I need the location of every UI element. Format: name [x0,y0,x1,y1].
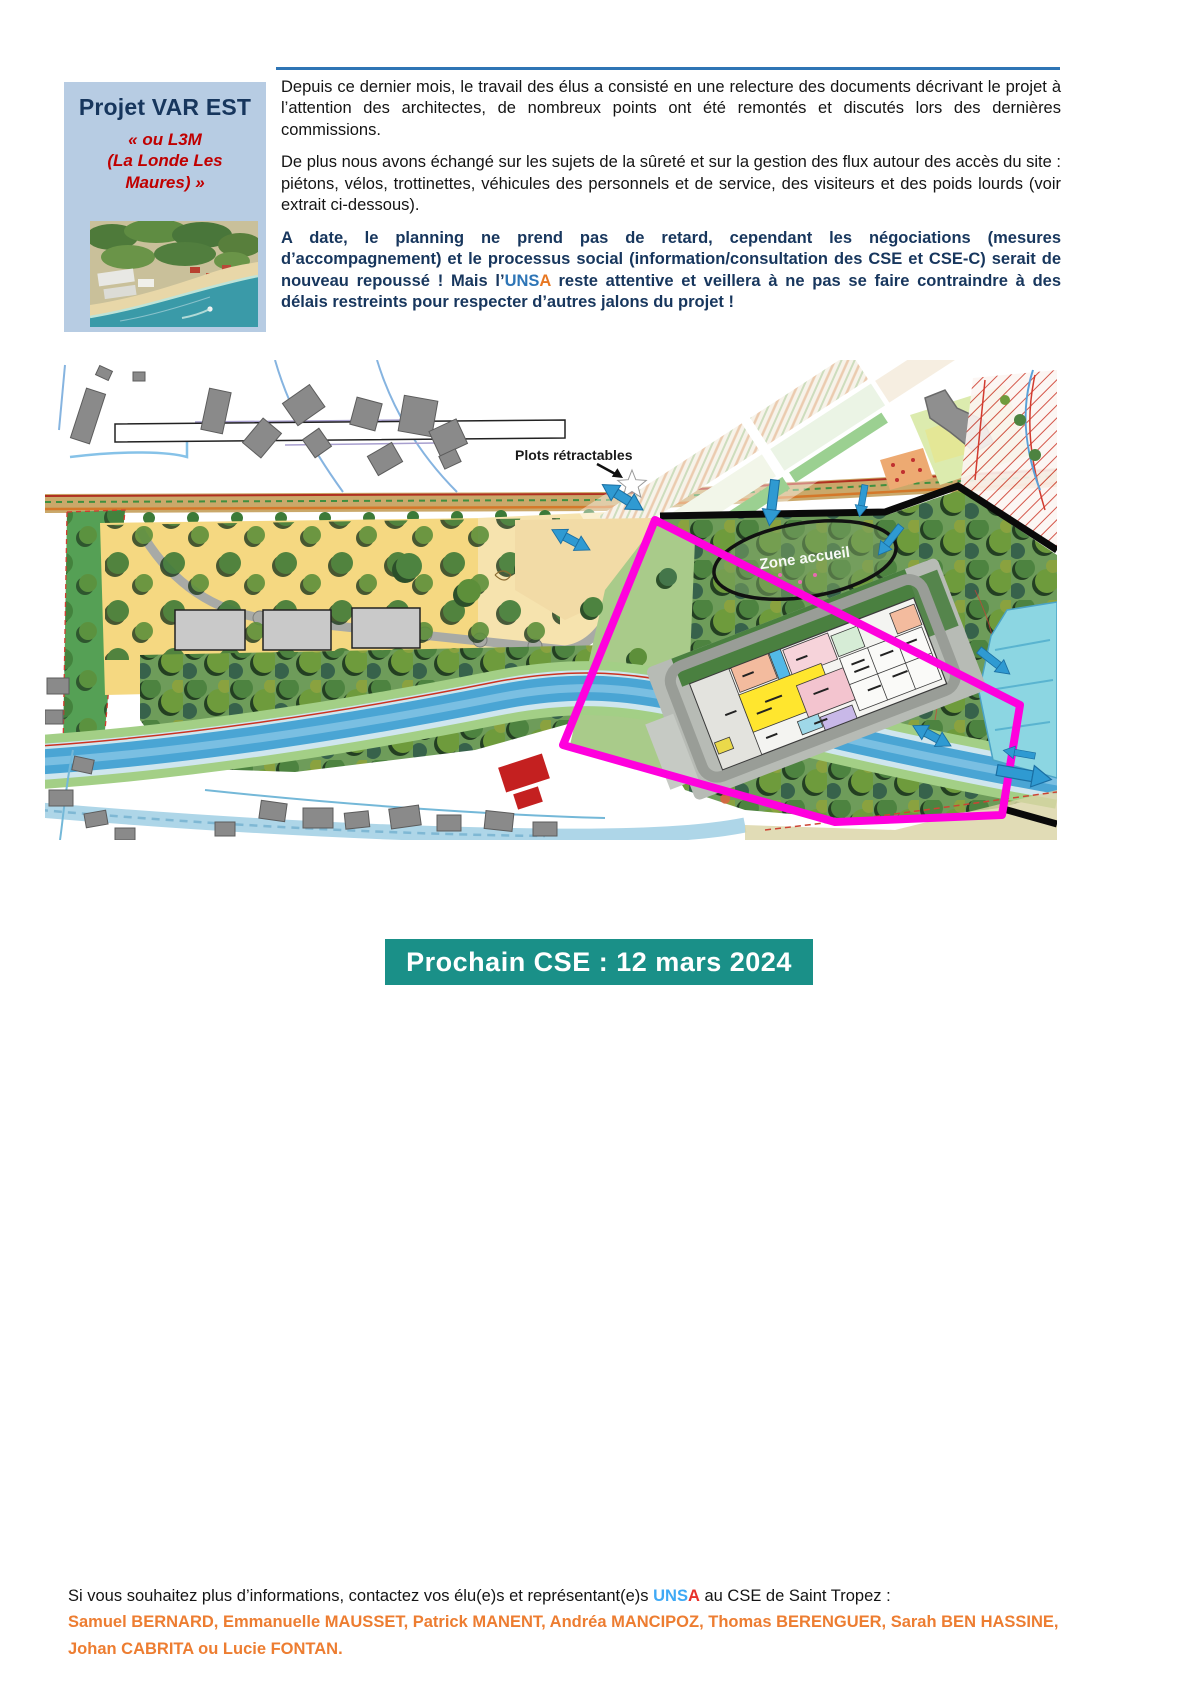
footer-unsa-blue: UNS [653,1587,688,1605]
representatives-names: Samuel BERNARD, Emmanuelle MAUSSET, Patr… [68,1609,1060,1662]
unsa-word-orange: A [539,272,550,290]
parking-buildings [175,608,420,650]
plots-retractables-label: Plots rétractables [515,447,633,463]
project-box: Projet VAR EST « ou L3M (La Londe Les Ma… [64,82,266,332]
paragraph-3: A date, le planning ne prend pas de reta… [281,228,1061,314]
next-cse-banner-text: Prochain CSE : 12 mars 2024 [406,947,792,977]
aerial-photo [90,221,258,327]
section-divider [276,67,1060,70]
site-plan-map: Zone accueil Plots rétractables [45,360,1057,840]
contact-line: Si vous souhaitez plus d’informations, c… [68,1583,1060,1609]
newsletter-page: Projet VAR EST « ou L3M (La Londe Les Ma… [0,0,1200,1697]
unsa-word-blue: UNS [505,272,540,290]
footer-unsa-red: A [688,1587,700,1605]
paragraph-2: De plus nous avons échangé sur les sujet… [281,152,1061,216]
next-cse-banner: Prochain CSE : 12 mars 2024 [385,939,813,985]
paragraph-1: Depuis ce dernier mois, le travail des é… [281,77,1061,141]
project-subtitle: « ou L3M (La Londe Les Maures) » [66,129,264,193]
update-text: Depuis ce dernier mois, le travail des é… [281,77,1061,324]
project-title: Projet VAR EST [68,94,262,121]
contact-footer: Si vous souhaitez plus d’informations, c… [68,1583,1060,1662]
